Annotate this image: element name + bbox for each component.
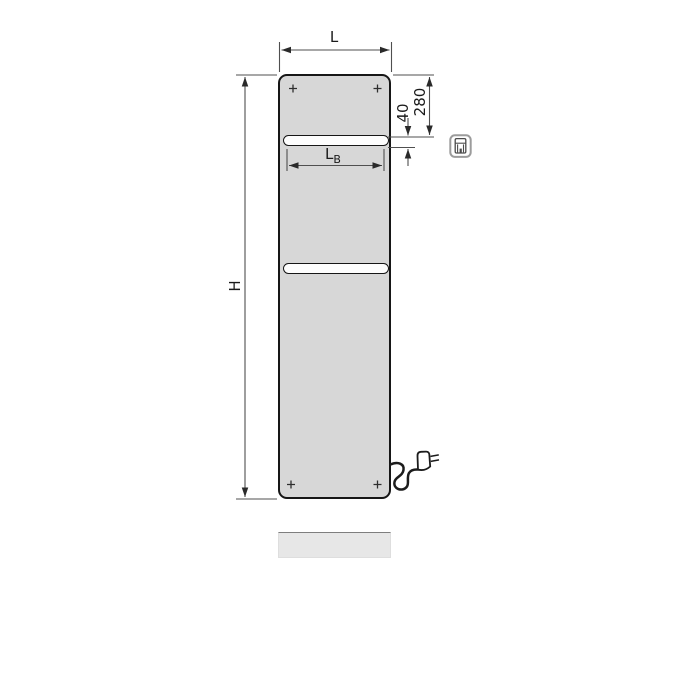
inner-width-label-sub: B [333,153,341,166]
width-dimension-lines [280,42,392,72]
width-dimension-label: L [322,29,346,45]
floor-shadow [278,532,391,558]
electric-element-icon [449,134,473,159]
power-plug-icon [417,452,439,470]
height-dimension-label: H [227,274,245,298]
offset-280-dimension-label: 280 [412,84,428,120]
inner-width-dimension-label: LB [308,146,358,168]
radiator-diagram: L H 280 40 LB [0,0,700,700]
power-cord [391,463,423,490]
slot-height-dimension-label: 40 [395,100,411,126]
towel-slot-lower [283,263,389,274]
towel-slot-upper [283,135,389,146]
